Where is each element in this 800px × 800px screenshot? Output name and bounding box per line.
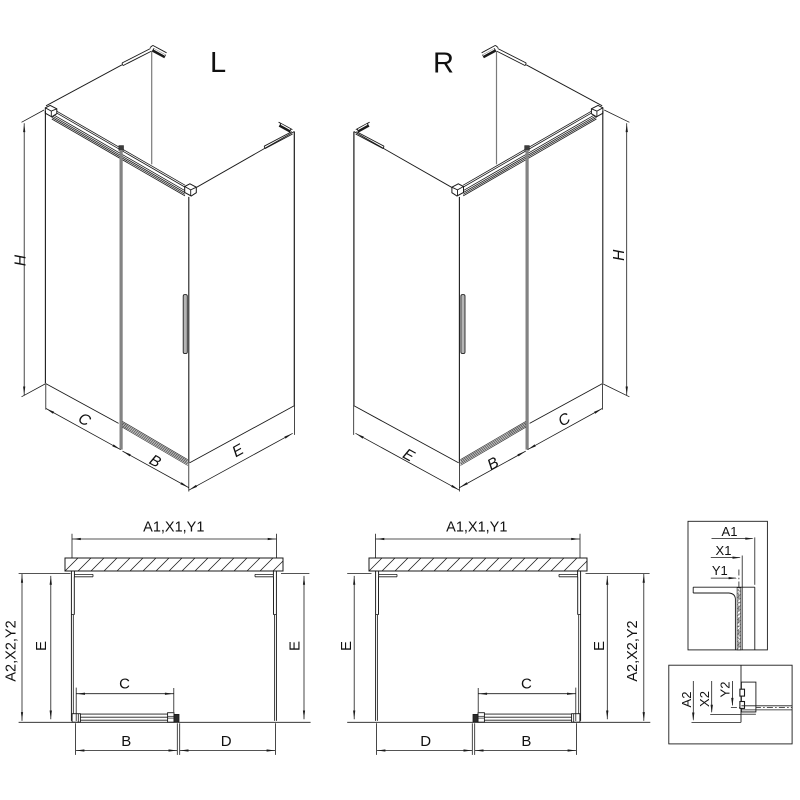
svg-text:C: C: [521, 676, 532, 693]
svg-text:E: E: [591, 641, 608, 651]
svg-text:D: D: [221, 733, 232, 750]
svg-text:A1,X1,Y1: A1,X1,Y1: [446, 520, 507, 536]
svg-text:A2: A2: [679, 692, 694, 708]
svg-text:D: D: [420, 733, 431, 750]
svg-text:E: E: [33, 641, 50, 651]
svg-text:X1: X1: [716, 543, 732, 558]
svg-text:H: H: [611, 249, 628, 261]
svg-text:A1,X1,Y1: A1,X1,Y1: [143, 520, 204, 536]
svg-text:C: C: [119, 676, 130, 693]
svg-text:H: H: [13, 254, 30, 266]
svg-text:B: B: [121, 733, 131, 750]
svg-text:A2,X2,Y2: A2,X2,Y2: [3, 620, 19, 681]
svg-text:A2,X2,Y2: A2,X2,Y2: [625, 620, 641, 681]
svg-text:L: L: [210, 47, 226, 79]
svg-text:B: B: [521, 733, 531, 750]
svg-text:A1: A1: [722, 524, 738, 539]
svg-text:E: E: [338, 641, 355, 651]
svg-text:Y1: Y1: [712, 563, 728, 578]
svg-text:Y2: Y2: [718, 682, 733, 698]
svg-text:E: E: [287, 641, 304, 651]
svg-text:R: R: [433, 48, 454, 80]
svg-text:X2: X2: [697, 691, 712, 707]
